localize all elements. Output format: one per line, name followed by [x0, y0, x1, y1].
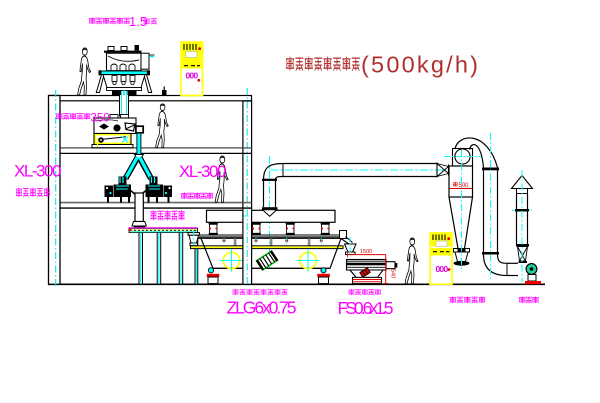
svg-text:540: 540 [390, 269, 396, 278]
svg-text:XL-300: XL-300 [179, 162, 227, 181]
svg-text:350: 350 [91, 113, 110, 125]
svg-text:XL-300: XL-300 [14, 162, 62, 181]
svg-text:1500: 1500 [360, 249, 372, 255]
svg-text:000: 000 [436, 264, 449, 274]
svg-text:FS0.6x1.5: FS0.6x1.5 [338, 298, 394, 318]
svg-text:000: 000 [186, 70, 199, 80]
svg-text:(500kg/h): (500kg/h) [361, 52, 478, 78]
svg-text:500: 500 [459, 183, 470, 189]
svg-text:ZLG6x0.75: ZLG6x0.75 [227, 298, 297, 318]
